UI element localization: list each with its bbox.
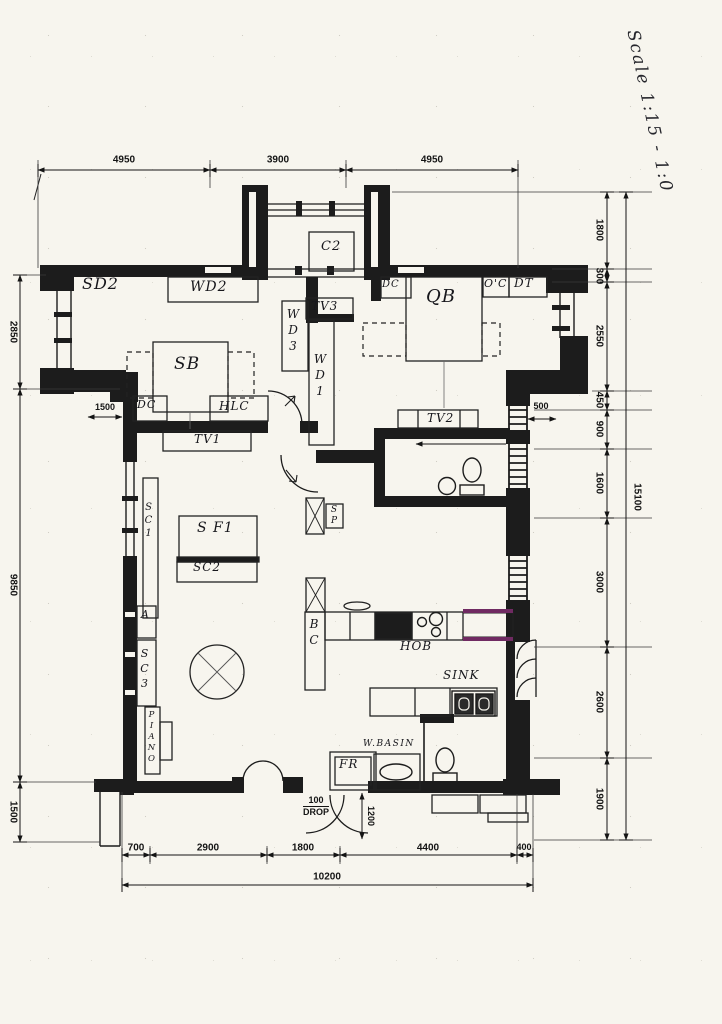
dim-right-6: 1600 <box>594 472 605 494</box>
dim-bottom-5: 400 <box>516 842 531 852</box>
label-a: A <box>141 609 150 620</box>
label-wbasin: W.BASIN <box>363 740 415 749</box>
dim-left-2: 9850 <box>8 574 19 596</box>
dim-top-1: 4950 <box>113 155 135 166</box>
dim-right-1: 1800 <box>594 219 605 241</box>
label-piano: PIANO <box>147 710 156 765</box>
label-hob: HOB <box>400 640 432 652</box>
dim-right-2: 300 <box>594 268 605 285</box>
dim-bottom-total: 10200 <box>313 872 341 883</box>
label-sc1: SC1 <box>143 502 153 541</box>
dim-right-5: 900 <box>594 421 605 438</box>
label-wd2: WD2 <box>190 280 228 294</box>
label-tv1: TV1 <box>194 433 221 445</box>
door-drop-note: 100 DROP <box>303 795 329 819</box>
dim-bottom-4: 4400 <box>417 843 439 854</box>
label-dt: DT <box>514 277 534 289</box>
label-sb: SB <box>174 356 200 373</box>
label-bc: BC <box>308 617 320 649</box>
dim-bottom-1: 700 <box>128 843 145 854</box>
dim-door-width: 1200 <box>366 806 376 826</box>
label-oc: O'C <box>484 278 507 289</box>
label-sink: SINK <box>443 669 479 681</box>
floor-plan-drawing <box>0 0 722 1024</box>
dim-left-3: 1500 <box>8 801 19 823</box>
accent-highlights <box>463 609 513 641</box>
label-sc3: SC3 <box>139 647 150 692</box>
dim-right-8: 2600 <box>594 691 605 713</box>
drop-value: 100 <box>303 795 329 807</box>
label-tv2: TV2 <box>427 412 454 424</box>
label-fr: FR <box>339 758 358 770</box>
dim-top-3: 4950 <box>421 155 443 166</box>
dim-bottom-2: 2900 <box>197 843 219 854</box>
label-hlc: HLC <box>219 400 250 412</box>
dim-left-1: 2850 <box>8 321 19 343</box>
label-sp: SP <box>329 505 338 527</box>
label-sc2: SC2 <box>193 561 221 573</box>
label-c2: C2 <box>321 240 341 253</box>
dim-right-7: 3000 <box>594 571 605 593</box>
label-sd2: SD2 <box>82 276 119 292</box>
drop-label: DROP <box>303 807 329 818</box>
label-wd3: WD3 <box>287 307 299 355</box>
dim-right-3: 2550 <box>594 325 605 347</box>
label-wd1: WD1 <box>314 352 326 400</box>
dim-right-9: 1900 <box>594 788 605 810</box>
floor-plan-sheet: Scale 1:15 - 1:0 4950 3900 4950 1800 300… <box>0 0 722 1024</box>
label-tv3: TV3 <box>311 300 338 312</box>
label-dc-master: DC <box>382 280 400 290</box>
label-dc-bedroom2: DC <box>137 399 156 410</box>
dim-offset-right: 500 <box>533 401 548 411</box>
dim-bottom-3: 1800 <box>292 843 314 854</box>
dim-right-total: 15100 <box>632 483 643 511</box>
label-sf1: S F1 <box>197 521 234 535</box>
label-qb: QB <box>426 288 456 306</box>
dim-right-4: 450 <box>594 392 605 409</box>
dim-top-2: 3900 <box>267 155 289 166</box>
dim-offset-left: 1500 <box>95 402 115 412</box>
